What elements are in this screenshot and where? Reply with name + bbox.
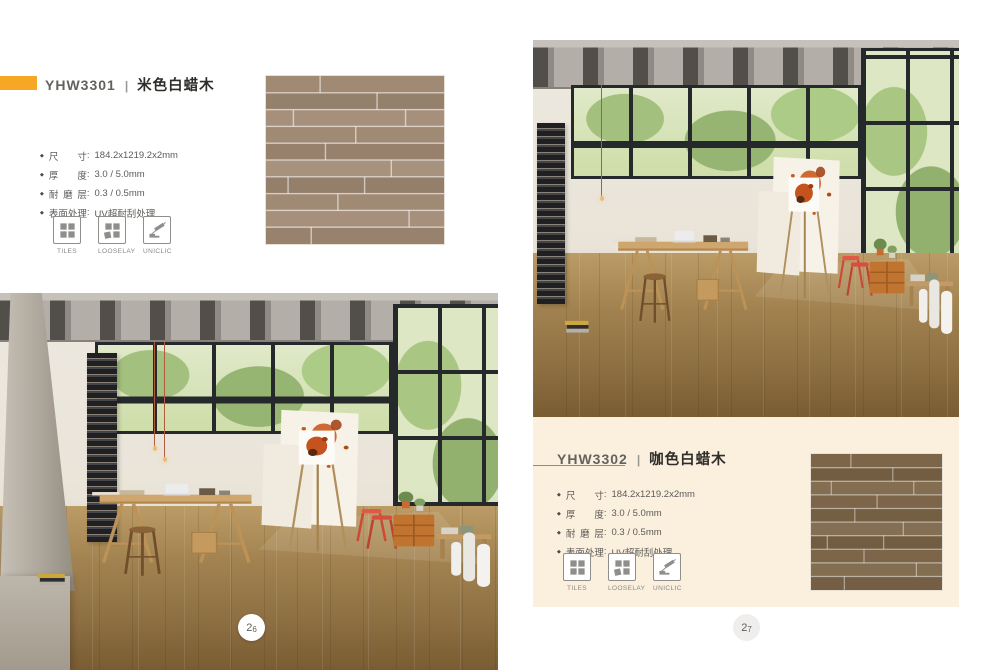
tiles-icon xyxy=(53,216,81,244)
plants xyxy=(874,239,897,258)
product-title-right: YHW3302 | 咖色白蜡木 xyxy=(557,448,727,469)
room-photo-right xyxy=(533,40,959,417)
page-number-right: 2 7 xyxy=(733,614,760,641)
title-separator: | xyxy=(637,453,640,467)
furniture-illustration xyxy=(533,40,959,417)
feature-uniclic: UNICLIC xyxy=(653,553,681,592)
page-number-left: 2 6 xyxy=(238,614,265,641)
product-name: 咖色白蜡木 xyxy=(649,448,727,469)
bullet-icon: ◆ xyxy=(557,492,561,498)
feature-icons-right: TILES LOOSELAY UNICLIC xyxy=(563,553,681,592)
feature-looselay: LOOSELAY xyxy=(98,216,126,255)
drawer-cabinet xyxy=(393,515,434,547)
drawer-cabinet xyxy=(870,262,905,294)
uniclic-icon xyxy=(653,553,681,581)
bullet-icon: ◆ xyxy=(40,153,44,159)
bullet-icon: ◆ xyxy=(40,191,44,197)
bullet-icon: ◆ xyxy=(557,511,561,517)
product-code: YHW3301 xyxy=(45,77,116,93)
trestle-desk xyxy=(612,231,748,310)
title-separator: | xyxy=(125,79,128,93)
spec-list-right: ◆尺寸:184.2x1219.2x2mm ◆厚度:3.0 / 5.0mm ◆耐磨… xyxy=(557,485,695,561)
looselay-icon xyxy=(608,553,636,581)
spec-list-left: ◆尺寸:184.2x1219.2x2mm ◆厚度:3.0 / 5.0mm ◆耐磨… xyxy=(40,146,178,222)
spec-row: ◆耐磨层:0.3 / 0.5mm xyxy=(40,184,178,203)
wood-swatch-coffee xyxy=(810,453,943,591)
feature-icons-left: TILES LOOSELAY UNICLIC xyxy=(53,216,171,255)
bullet-icon: ◆ xyxy=(40,172,44,178)
spec-row: ◆尺寸:184.2x1219.2x2mm xyxy=(40,146,178,165)
uniclic-icon xyxy=(143,216,171,244)
feature-tiles: TILES xyxy=(53,216,81,255)
leaning-canvases xyxy=(261,410,358,529)
stool xyxy=(125,526,216,575)
spec-row: ◆厚度:3.0 / 5.0mm xyxy=(40,165,178,184)
feature-tiles: TILES xyxy=(563,553,591,592)
floor-books xyxy=(37,574,65,586)
leaning-canvases xyxy=(757,157,840,276)
product-code: YHW3302 xyxy=(557,451,628,467)
feature-uniclic: UNICLIC xyxy=(143,216,171,255)
spec-row: ◆厚度:3.0 / 5.0mm xyxy=(557,504,695,523)
plants xyxy=(398,492,425,511)
spec-row: ◆尺寸:184.2x1219.2x2mm xyxy=(557,485,695,504)
floor-books xyxy=(565,321,589,333)
stool xyxy=(640,273,718,322)
bullet-icon: ◆ xyxy=(557,530,561,536)
wood-swatch-beige xyxy=(265,75,445,245)
bullet-icon: ◆ xyxy=(40,210,44,216)
looselay-icon xyxy=(98,216,126,244)
wood-swatch-illustration xyxy=(266,76,444,244)
accent-bar xyxy=(0,76,37,90)
bullet-icon: ◆ xyxy=(557,549,561,555)
trestle-desk xyxy=(92,484,251,563)
product-title-left: YHW3301 | 米色白蜡木 xyxy=(45,74,215,95)
wood-swatch-illustration xyxy=(811,454,942,590)
spec-row: ◆耐磨层:0.3 / 0.5mm xyxy=(557,523,695,542)
tiles-icon xyxy=(563,553,591,581)
product-name: 米色白蜡木 xyxy=(137,74,215,95)
product-panel-right: YHW3302 | 咖色白蜡木 ◆尺寸:184.2x1219.2x2mm ◆厚度… xyxy=(533,417,959,607)
feature-looselay: LOOSELAY xyxy=(608,553,636,592)
